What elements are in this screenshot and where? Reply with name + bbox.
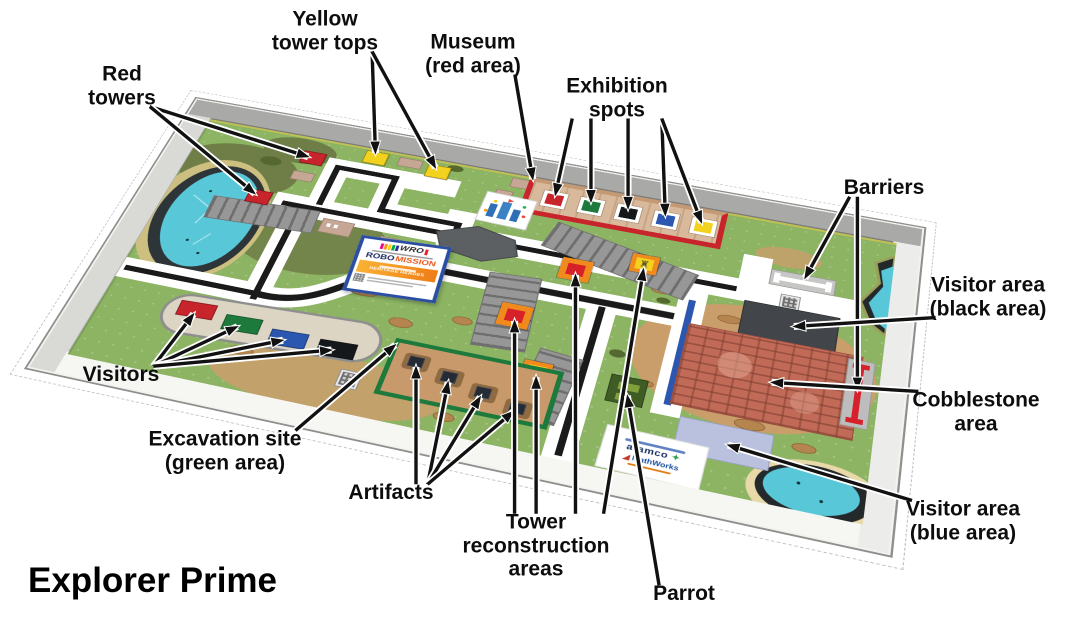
label-red-towers: Red towers: [88, 62, 156, 109]
label-tower-reconstruction-areas: Tower reconstruction areas: [462, 511, 609, 582]
label-line: Barriers: [844, 176, 925, 200]
dig-hole: [501, 398, 533, 420]
label-line: Tower: [462, 511, 609, 535]
artifact: [508, 402, 527, 416]
label-visitors: Visitors: [83, 363, 160, 387]
artifact: [473, 386, 492, 400]
visitor-red: [175, 300, 218, 320]
mathworks-triangle-icon: ◢: [622, 451, 631, 460]
label-parrot: Parrot: [653, 582, 715, 606]
label-visitor-area-blue: Visitor area (blue area): [906, 497, 1020, 544]
label-cobblestone-area: Cobblestone area: [912, 388, 1039, 435]
visitor-black: [315, 339, 359, 360]
label-line: tower tops: [272, 31, 378, 55]
label-line: (blue area): [906, 521, 1020, 545]
dig-hole: [467, 382, 499, 403]
sign-qr-code: [352, 273, 365, 282]
page-title: Explorer Prime: [28, 561, 277, 601]
artifact: [440, 371, 459, 384]
visitor-green: [220, 314, 263, 335]
label-artifacts: Artifacts: [348, 481, 433, 505]
label-line: reconstruction: [462, 534, 609, 558]
label-line: Red: [88, 62, 156, 86]
label-line: Museum: [425, 30, 521, 54]
label-line: spots: [566, 98, 668, 122]
label-line: Artifacts: [348, 481, 433, 505]
dig-hole: [400, 352, 432, 373]
label-line: Visitor area: [906, 497, 1020, 521]
diagram-canvas: aramco ✦ ◢ MathWorks ♜ ♜: [0, 0, 1080, 622]
label-museum: Museum (red area): [425, 30, 521, 77]
label-line: Parrot: [653, 582, 715, 606]
label-line: towers: [88, 86, 156, 110]
label-visitor-area-black: Visitor area (black area): [930, 273, 1047, 320]
label-yellow-tower-tops: Yellow tower tops: [272, 7, 378, 54]
exhibition-spot-green: [577, 197, 606, 217]
label-line: Excavation site: [149, 427, 302, 451]
exhibition-spot-yellow: [689, 217, 718, 237]
dig-hole: [433, 367, 465, 388]
label-line: Exhibition: [566, 74, 668, 98]
exhibition-spot-black: [614, 203, 643, 223]
tower-icon: ♜: [638, 259, 651, 269]
parrot-detail: [617, 382, 640, 393]
label-line: Cobblestone: [912, 388, 1039, 412]
label-line: (red area): [425, 54, 521, 78]
label-exhibition-spots: Exhibition spots: [566, 74, 668, 121]
aramco-star-icon: ✦: [671, 452, 682, 463]
label-line: area: [912, 412, 1039, 436]
artifact: [407, 355, 426, 368]
label-barriers: Barriers: [844, 176, 925, 200]
game-table: aramco ✦ ◢ MathWorks ♜ ♜: [24, 97, 927, 558]
label-excavation-site: Excavation site (green area): [149, 427, 302, 474]
label-line: (green area): [149, 451, 302, 475]
visitor-blue: [266, 329, 310, 350]
wro-logo-bar: [424, 249, 429, 255]
label-line: areas: [462, 558, 609, 582]
label-line: Visitors: [83, 363, 160, 387]
barrier-ibeam-red: [845, 363, 870, 425]
label-line: Visitor area: [930, 273, 1047, 297]
label-line: (black area): [930, 297, 1047, 321]
exhibition-spot-blue: [651, 210, 680, 230]
label-line: Yellow: [272, 7, 378, 31]
parrot-detail: [615, 393, 629, 402]
exhibition-spot-red: [540, 190, 569, 209]
